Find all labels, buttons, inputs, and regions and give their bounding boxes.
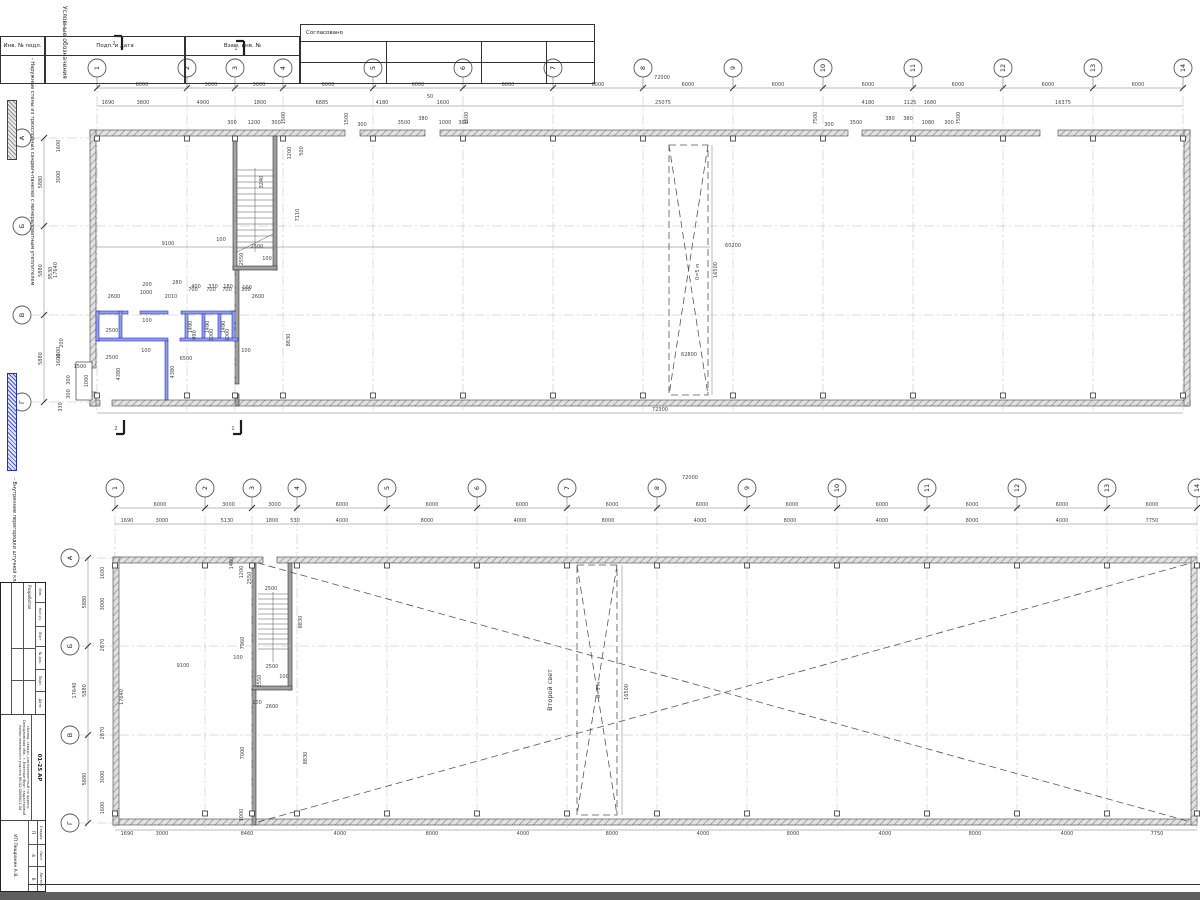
dim-label: 4000	[517, 831, 530, 837]
axis-label: 7	[563, 486, 571, 490]
dim-label: 300	[66, 375, 72, 385]
dim-label: 8000	[606, 831, 619, 837]
dim-label: 100	[142, 318, 152, 324]
column	[1195, 563, 1200, 568]
dim-label: 300	[66, 389, 72, 399]
dim-label: 100	[242, 285, 252, 291]
dim-label: 8000	[787, 831, 800, 837]
axis-label: 13	[1103, 484, 1111, 492]
dim-label: 4180	[376, 100, 389, 106]
dim-label: 72300	[652, 407, 668, 413]
dim-label: 700	[222, 287, 232, 293]
dim-label: 380	[418, 116, 428, 122]
stamp-empty	[11, 583, 23, 649]
column	[911, 393, 916, 398]
dim-label: 9100	[162, 241, 175, 247]
dim-label: 5880	[38, 352, 44, 365]
dim-label: 6500	[180, 356, 193, 362]
axis-label: 9	[729, 66, 737, 70]
column	[565, 563, 570, 568]
dim-label: 2500	[265, 586, 278, 592]
grid-line	[386, 41, 387, 83]
dim-label: 8000	[421, 518, 434, 524]
dim-label: 1200	[239, 566, 245, 579]
dim-label: 6000	[606, 502, 619, 508]
stamp-col: Кол.уч.	[35, 603, 45, 627]
dim-label: 6000	[336, 502, 349, 508]
dim-label: 4000	[879, 831, 892, 837]
dim-label: 16375	[1055, 100, 1071, 106]
dim-label: 2550	[247, 572, 253, 585]
dim-label: 16500	[624, 684, 630, 700]
plan1-building	[76, 130, 1190, 406]
dim-label: 4900	[197, 100, 210, 106]
dim-label: 7750	[1146, 518, 1159, 524]
dim-label: 100	[141, 348, 151, 354]
dim-label: 4000	[336, 518, 349, 524]
dim-label: 4000	[876, 518, 889, 524]
dim-label: 0=5 м	[596, 682, 602, 698]
dim-label: 3000	[268, 502, 281, 508]
dim-label: 2600	[108, 294, 121, 300]
dim-label: 300	[944, 120, 954, 126]
dim-label: 8000	[966, 518, 979, 524]
dim-label: 1000	[225, 329, 231, 342]
axis-label: Б	[18, 224, 26, 228]
axis-label: 13	[1089, 64, 1097, 72]
dim-label: 4000	[697, 831, 710, 837]
column	[551, 393, 556, 398]
grid-line	[301, 62, 594, 63]
dim-label: 1690	[102, 100, 115, 106]
dim-label: 3500	[850, 120, 863, 126]
axis-label: 8	[639, 66, 647, 70]
column	[281, 393, 286, 398]
dim-label: 200	[59, 338, 65, 348]
dim-label: 16500	[713, 262, 719, 278]
column	[1195, 811, 1200, 816]
dim-label: 2500	[106, 355, 119, 361]
dim-label: 100	[241, 348, 251, 354]
dim-label: 6885	[316, 100, 329, 106]
dim-label: 100	[233, 655, 243, 661]
dim-label: 1125	[904, 100, 917, 106]
axis-label: 1	[111, 486, 119, 490]
stamp-col: Дата	[35, 692, 45, 714]
axis-label: 14	[1179, 64, 1187, 72]
dim-label: 500	[299, 146, 305, 156]
axis-label: 11	[923, 484, 931, 492]
dim-label: 25075	[655, 100, 671, 106]
dim-label: 9100	[177, 663, 190, 669]
column	[281, 136, 286, 141]
axis-label: 6	[473, 486, 481, 490]
column	[1181, 393, 1186, 398]
dim-label: 72000	[682, 475, 698, 481]
stamp-list-label: Лист	[37, 845, 45, 867]
column	[551, 136, 556, 141]
dim-label: 7000	[240, 747, 246, 760]
axis-label: Б	[66, 644, 74, 648]
dim-label: 700	[206, 287, 216, 293]
axis-label: А	[18, 135, 26, 140]
dim-label: 2550	[257, 675, 263, 688]
approved-box: Согласовано	[300, 24, 595, 84]
axis-label: 12	[999, 64, 1007, 72]
section-mark-label: 2	[114, 426, 117, 432]
column	[1001, 136, 1006, 141]
dim-label: 1680	[924, 100, 937, 106]
dim-label: 1080	[922, 120, 935, 126]
grid-line	[481, 41, 482, 83]
dim-label: 4180	[862, 100, 875, 106]
dim-label: 1500	[74, 364, 87, 370]
dim-label: 50	[427, 94, 433, 100]
axis-label: В	[18, 313, 26, 317]
stamp-object-text: «Холод. склад», расположенный по адресу:…	[1, 715, 31, 820]
column	[641, 393, 646, 398]
section-mark-label: 1	[231, 426, 234, 432]
dim-label: 6000	[1132, 82, 1145, 88]
dim-label: 2870	[100, 639, 106, 652]
axis-label: 10	[819, 64, 827, 72]
dim-label: 3000	[100, 771, 106, 784]
column	[295, 811, 300, 816]
dim-label: 280	[172, 280, 182, 286]
dim-label: 6000	[426, 502, 439, 508]
dim-label: 200	[142, 282, 152, 288]
legend-sample-partition	[7, 373, 17, 471]
stamp-lists-value: 6	[28, 867, 37, 891]
dim-label: 2500	[266, 664, 279, 670]
dim-label: 2010	[165, 294, 178, 300]
dim-label: 4380	[170, 366, 176, 379]
dim-label: 1000	[84, 375, 90, 388]
column	[371, 393, 376, 398]
dim-label: 300	[271, 120, 281, 126]
column	[821, 393, 826, 398]
dim-label: 8830	[298, 616, 304, 629]
stamp-empty	[11, 649, 23, 682]
dim-label: 8000	[784, 518, 797, 524]
dim-label: 0=5 м	[695, 264, 701, 280]
axis-label: 14	[1193, 484, 1200, 492]
dim-label: 6000	[952, 82, 965, 88]
column	[1105, 811, 1110, 816]
dim-label: 8830	[303, 752, 309, 765]
column	[821, 136, 826, 141]
column	[113, 563, 118, 568]
dim-label: 72000	[654, 75, 670, 81]
sheet-bottom-band	[0, 892, 1200, 900]
axis-label: 12	[1013, 484, 1021, 492]
column	[113, 811, 118, 816]
stamp-stage-label: Стадия	[37, 821, 45, 845]
dim-label: 7750	[1151, 831, 1164, 837]
dim-label: 3800	[137, 100, 150, 106]
dim-label: 2600	[252, 294, 265, 300]
dim-label: 1200	[287, 147, 293, 160]
dim-label: 7110	[295, 209, 301, 222]
dim-label: 6000	[696, 502, 709, 508]
dim-label: 4000	[334, 831, 347, 837]
stamp-col: Лист	[35, 627, 45, 647]
column	[250, 563, 255, 568]
stamp-col: Изм.	[35, 583, 45, 603]
plan2-void-diagonals	[258, 563, 1191, 822]
dim-label: 4000	[514, 518, 527, 524]
column	[371, 136, 376, 141]
column	[95, 136, 100, 141]
dim-label: 100	[252, 700, 262, 706]
dim-label: 7960	[240, 637, 246, 650]
plan2-building	[113, 557, 1197, 825]
dim-label: 6000	[1146, 502, 1159, 508]
dim-label: 990	[192, 330, 198, 340]
stamp-right-block: Стадия Лист Листов П 4 6 ИП Пищронин А.В…	[1, 821, 45, 891]
stamp-col: № док.	[35, 647, 45, 671]
dim-label: 9530	[48, 267, 54, 280]
dim-label: 5130	[221, 518, 234, 524]
column	[385, 811, 390, 816]
dim-label: 3000	[156, 518, 169, 524]
column	[641, 136, 646, 141]
dim-label: 7500	[813, 112, 819, 125]
dim-label: 1480	[229, 557, 235, 570]
stamp-col: Подп.	[35, 670, 45, 692]
strip-cell-vzam: Взам. инв. №	[185, 36, 300, 84]
stamp-left-block: Изм. Кол.уч. Лист № док. Подп. Дата Разр…	[1, 583, 45, 715]
axis-label: 5	[383, 486, 391, 490]
dim-label: 1500	[464, 112, 470, 125]
column	[1015, 811, 1020, 816]
column	[731, 136, 736, 141]
dim-label: 17640	[119, 689, 125, 705]
dim-label: 3000	[222, 502, 235, 508]
dim-label: 700	[188, 287, 198, 293]
dim-label: 4000	[1056, 518, 1069, 524]
dim-label: 380	[903, 116, 913, 122]
column	[385, 563, 390, 568]
dim-label: 1500	[281, 112, 287, 125]
column	[95, 393, 100, 398]
axis-label: 2	[201, 486, 209, 490]
stamp-lists-label: Листов	[37, 867, 45, 891]
legend-sample-outer-wall	[7, 100, 17, 160]
dim-label: 8000	[969, 831, 982, 837]
column	[233, 393, 238, 398]
axis-label: Г	[66, 821, 74, 825]
dim-label: 5880	[38, 176, 44, 189]
column	[461, 393, 466, 398]
strip-cell-label: Взам. инв. №	[186, 37, 299, 56]
dim-label: 1800	[266, 518, 279, 524]
stamp-signature	[23, 649, 35, 682]
dim-label: 1800	[254, 100, 267, 106]
dim-label: 1000	[239, 809, 245, 822]
column	[1181, 136, 1186, 141]
dim-label: 100	[262, 256, 272, 262]
axis-label: В	[66, 733, 74, 737]
dim-label: 1600	[100, 802, 106, 815]
column	[1001, 393, 1006, 398]
dim-label: 5880	[82, 596, 88, 609]
dim-label: 6000	[772, 82, 785, 88]
second-light-label: Второй свет	[546, 669, 554, 711]
column	[203, 563, 208, 568]
dim-label: 1600	[437, 100, 450, 106]
column	[655, 811, 660, 816]
dim-label: 1000	[140, 290, 153, 296]
approved-label: Согласовано	[301, 25, 594, 41]
dim-label: 300	[227, 120, 237, 126]
dim-label: 1000	[209, 329, 215, 342]
dim-label: 100	[279, 674, 289, 680]
dim-label: 4000	[1061, 831, 1074, 837]
column	[731, 393, 736, 398]
dim-label: 4000	[694, 518, 707, 524]
stamp-stage-value: П	[28, 821, 37, 845]
dim-label: 380	[885, 116, 895, 122]
top-strip: Инв. № подл. Подп. и дата Взам. инв. № С…	[0, 24, 596, 84]
axis-label: 8	[653, 486, 661, 490]
dim-label: 1000	[439, 120, 452, 126]
column	[475, 563, 480, 568]
dim-label: 1600	[100, 567, 106, 580]
column	[655, 563, 660, 568]
column	[911, 136, 916, 141]
dim-label: 4380	[116, 368, 122, 381]
column	[185, 136, 190, 141]
dim-label: 1200	[248, 120, 261, 126]
stamp-middle-block: 01-25 АР «Холод. склад», расположенный п…	[1, 715, 45, 821]
dim-label: 6000	[862, 82, 875, 88]
stamp-empty	[11, 681, 23, 714]
dim-label: 8000	[602, 518, 615, 524]
column	[1091, 393, 1096, 398]
dim-label: 6000	[516, 502, 529, 508]
grid-line	[546, 41, 547, 83]
plan2-annotations: 1234567891011121314600030003000600060006…	[61, 475, 1200, 837]
stamp-date	[23, 681, 35, 714]
dim-label: 2500	[251, 244, 264, 250]
column	[475, 811, 480, 816]
axis-label: 9	[743, 486, 751, 490]
dim-label: 2600	[266, 704, 279, 710]
dim-label: 5880	[82, 684, 88, 697]
dim-label: 3500	[398, 120, 411, 126]
dim-label: 100	[216, 237, 226, 243]
dim-label: 3000	[156, 831, 169, 837]
sheet-frame-line	[28, 884, 1200, 885]
dim-label: 530	[290, 518, 300, 524]
column	[835, 563, 840, 568]
stamp-role: Разработал	[23, 583, 35, 649]
dim-label: 2500	[106, 328, 119, 334]
dim-label: 17640	[72, 683, 78, 699]
dim-label: 3000	[56, 171, 62, 184]
dim-label: 1500	[344, 113, 350, 126]
dim-label: 3000	[100, 598, 106, 611]
column	[1015, 563, 1020, 568]
dim-label: 2550	[239, 253, 245, 266]
axis-label: 10	[833, 484, 841, 492]
stamp-list-value: 4	[28, 845, 37, 867]
column	[185, 393, 190, 398]
dim-label: 7500	[956, 112, 962, 125]
column	[565, 811, 570, 816]
dim-label: 1690	[121, 518, 134, 524]
dim-label: 300	[357, 122, 367, 128]
dim-label: 6000	[876, 502, 889, 508]
dim-label: 60200	[725, 243, 741, 249]
dim-label: 6000	[1042, 82, 1055, 88]
axis-label: А	[66, 555, 74, 560]
column	[295, 563, 300, 568]
legend-item-outer-wall: - Наружные стены из трехслойных сэндвич-…	[26, 58, 38, 358]
dim-label: 300	[824, 122, 834, 128]
column	[925, 563, 930, 568]
dim-label: 1600	[56, 140, 62, 153]
floor-plans-canvas: 1234567891011121314600030003000600060006…	[0, 0, 1200, 900]
axis-label: 3	[248, 486, 256, 490]
stamp-doc-number: 01-25 АР	[31, 715, 45, 820]
dim-label: 1600	[56, 347, 62, 360]
dim-label: 6000	[966, 502, 979, 508]
drawing-sheet: 1234567891011121314600030003000600060006…	[0, 0, 1200, 900]
stamp-company: ИП Пищронин А.В.	[1, 821, 28, 891]
strip-cell-label: Инв. № подл.	[1, 37, 44, 56]
axis-label: Г	[18, 400, 26, 404]
dim-label: 8830	[286, 334, 292, 347]
column	[925, 811, 930, 816]
plan1-annotations: 1234567891011121314600030003000600060006…	[13, 36, 1192, 434]
column	[250, 811, 255, 816]
column	[835, 811, 840, 816]
dim-label: 8000	[426, 831, 439, 837]
strip-cell-inv: Инв. № подл.	[0, 36, 45, 84]
dim-label: 6000	[786, 502, 799, 508]
dim-label: 330	[58, 402, 64, 412]
dim-label: 2870	[100, 727, 106, 740]
dim-label: 62800	[681, 352, 697, 358]
title-block: Изм. Кол.уч. Лист № док. Подп. Дата Разр…	[0, 582, 46, 892]
column	[203, 811, 208, 816]
dim-label: 8460	[241, 831, 254, 837]
legend-title: Условные обозначения	[58, 6, 70, 136]
dim-label: 5880	[82, 773, 88, 786]
dim-label: 1690	[121, 831, 134, 837]
grid-line	[301, 41, 594, 42]
axis-label: 11	[909, 64, 917, 72]
dim-label: 6000	[154, 502, 167, 508]
column	[745, 811, 750, 816]
column	[461, 136, 466, 141]
dim-label: 5880	[38, 264, 44, 277]
dim-label: 6000	[1056, 502, 1069, 508]
axis-label: 4	[293, 486, 301, 490]
column	[1091, 136, 1096, 141]
dim-label: 6000	[682, 82, 695, 88]
column	[233, 136, 238, 141]
column	[1105, 563, 1110, 568]
column	[745, 563, 750, 568]
